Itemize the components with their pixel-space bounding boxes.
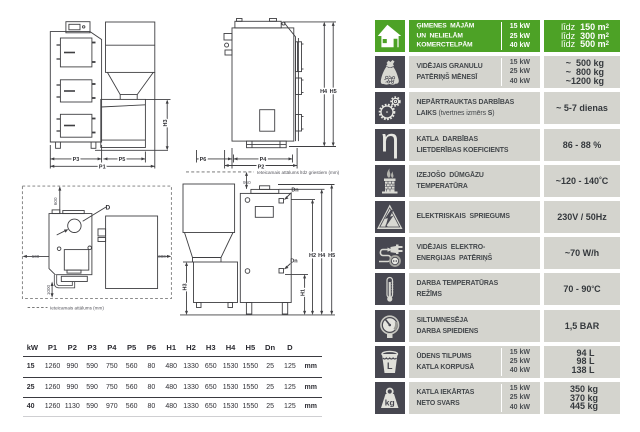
- svg-text:600: 600: [53, 197, 58, 205]
- svg-text:P4: P4: [260, 157, 268, 163]
- svg-text:kg: kg: [385, 398, 395, 408]
- svg-text:600: 600: [32, 254, 40, 259]
- svg-text:H5: H5: [330, 89, 337, 95]
- svg-text:300: 300: [158, 254, 166, 259]
- svg-text:Ieteicamais attālums (mm): Ieteicamais attālums (mm): [50, 305, 104, 310]
- svg-text:H2: H2: [309, 253, 316, 259]
- svg-text:H5: H5: [328, 253, 335, 259]
- svg-text:P3: P3: [73, 157, 80, 163]
- svg-text:H4: H4: [320, 89, 328, 95]
- svg-text:η: η: [381, 129, 399, 159]
- svg-text:Dn: Dn: [291, 188, 299, 194]
- svg-text:950: 950: [243, 180, 251, 185]
- svg-text:H4: H4: [318, 253, 326, 259]
- svg-text:Ieteicamais attālums līdz grie: Ieteicamais attālums līdz griestiem (mm): [257, 170, 340, 175]
- svg-text:H3: H3: [163, 119, 169, 126]
- svg-text:Dn: Dn: [290, 259, 298, 265]
- svg-text:H1: H1: [301, 289, 307, 296]
- svg-text:D: D: [105, 205, 110, 212]
- svg-text:H3: H3: [183, 283, 189, 290]
- svg-text:P1: P1: [99, 164, 106, 170]
- svg-text:1000: 1000: [46, 284, 51, 295]
- svg-text:L: L: [387, 361, 393, 371]
- svg-text:P6: P6: [200, 157, 207, 163]
- svg-text:P5: P5: [119, 157, 126, 163]
